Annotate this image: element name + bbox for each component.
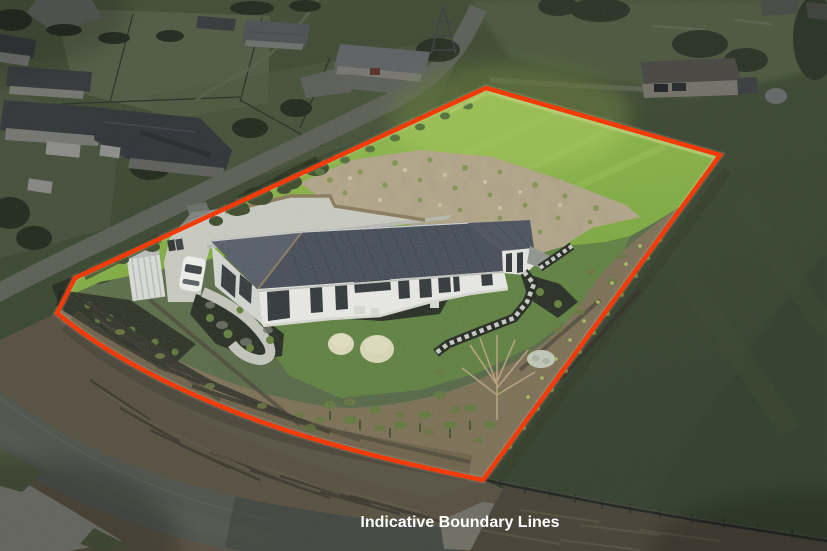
svg-text:Indicative Boundary Lines: Indicative Boundary Lines [360, 514, 559, 531]
